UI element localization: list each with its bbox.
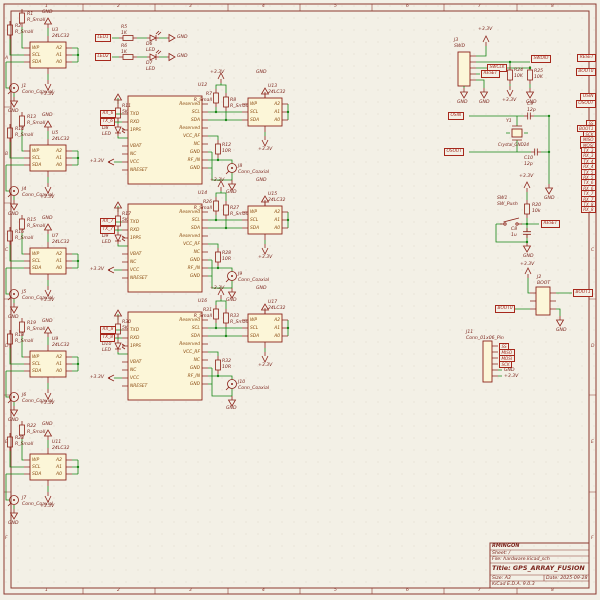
ref-label: R19 R_Small: [27, 321, 45, 333]
titleblock-size: Size: A3: [492, 576, 511, 582]
frame-col: 3: [189, 4, 192, 10]
ref-label: U15 24LC32: [268, 192, 285, 204]
gnd-label: GND: [8, 212, 19, 218]
frame-col: 4: [262, 588, 265, 594]
ref-label: J5 Conn_Coaxial: [22, 290, 53, 302]
power-label: +3.3V: [84, 159, 104, 165]
frame-col: 1: [45, 588, 48, 594]
power-label: +3.3V: [520, 262, 534, 268]
ref-label: R7 R_Small: [182, 92, 212, 104]
net-label[interactable]: SWDIO: [531, 55, 551, 63]
pin-names: Reserved SCL SDA Reserved VCC_RF NC GND …: [158, 101, 200, 173]
gnd-label: GND: [226, 298, 237, 304]
pin-names: A2 A1 A0: [260, 101, 280, 125]
net-label[interactable]: TX_6: [100, 118, 115, 126]
frame-col: 4: [262, 4, 265, 10]
gnd-label: GND: [8, 418, 19, 424]
net-label[interactable]: BOOT1: [573, 289, 593, 297]
titleblock-company: RMINGON: [492, 544, 519, 550]
ref-label: U5 24LC32: [52, 131, 69, 143]
ref-label: Y1: [506, 119, 512, 125]
ref-label: J11 Conn_01x06_Pin: [466, 330, 504, 342]
ref-label: R27 R_Small: [230, 206, 248, 218]
frame-row: F: [591, 536, 594, 542]
titleblock-title: Title: GPS_ARRAY_FUSION: [492, 566, 585, 572]
net-label[interactable]: TX_7: [100, 226, 115, 234]
power-label: +3.3V: [210, 70, 224, 76]
frame-col: 5: [334, 588, 337, 594]
ref-label: R26 R_Small: [182, 200, 212, 212]
frame-row: A: [5, 56, 8, 62]
pin-names: WP SCL SDA: [32, 457, 41, 478]
ref-label: U12: [198, 83, 207, 89]
ref-label: R8 R_Small: [230, 98, 248, 110]
frame-col: 5: [334, 4, 337, 10]
net-label[interactable]: RX_7: [100, 218, 116, 226]
ref-label: D10 LED: [102, 342, 111, 354]
net-label[interactable]: OSOUT: [576, 100, 596, 108]
ref-label: D6 LED: [146, 42, 155, 54]
ref-label: SW1 SW_Push: [497, 196, 518, 208]
gnd-label: GND: [504, 368, 515, 374]
net-label[interactable]: RESET: [481, 70, 500, 78]
gnd-label: GND: [177, 54, 188, 60]
power-label: +3.3V: [210, 286, 224, 292]
ref-label: R24 10K: [514, 68, 523, 80]
frame-col: 2: [117, 4, 120, 10]
ref-label: D7 LED: [146, 61, 155, 73]
ref-label: J10 Conn_Coaxial: [238, 380, 269, 392]
pin-names: WP SCL SDA: [250, 209, 259, 233]
ref-label: C10 12p: [524, 156, 533, 168]
pin-names: WP SCL SDA: [32, 148, 41, 169]
titleblock-tool: KiCad E.D.A. 9.0.3: [492, 582, 535, 588]
pin-names: WP SCL SDA: [32, 251, 41, 272]
gnd-label: GND: [177, 35, 188, 41]
gnd-label: GND: [226, 190, 237, 196]
ref-label: D8 LED: [102, 126, 111, 138]
frame-col: 8: [551, 4, 554, 10]
frame-col: 2: [117, 588, 120, 594]
ref-label: J1 Conn_Coaxial: [22, 84, 53, 96]
power-label: +3.3V: [258, 363, 272, 369]
frame-row: E: [5, 440, 8, 446]
ref-label: R28 10R: [222, 251, 231, 263]
frame-row: B: [5, 152, 8, 158]
ref-label: R2 R_Small: [15, 24, 33, 36]
net-label[interactable]: OSOUT: [444, 148, 464, 156]
power-label: +3.3V: [478, 27, 492, 33]
gnd-label: GND: [8, 109, 19, 115]
ref-label: C8 1u: [511, 227, 517, 239]
pin-names: A2 A1 A0: [44, 354, 62, 375]
pin-names: TXD RXD 1PPS VBAT NC VCC NRESET: [130, 111, 147, 175]
ref-label: J7 Conn_Coaxial: [22, 496, 53, 508]
kicad-schematic-sheet: { "shared": {"gnd": "GND", "v33": "+3.3V…: [0, 0, 600, 600]
ref-label: R20 10k: [532, 203, 541, 215]
power-label: +3.3V: [504, 374, 518, 380]
ref-label: U17 24LC32: [268, 300, 285, 312]
ref-label: J4 Conn_Coaxial: [22, 187, 53, 199]
ref-label: R1 R_Small: [27, 12, 45, 24]
pin-names: A2 A1 A0: [44, 45, 62, 66]
net-label[interactable]: RX_8: [581, 206, 596, 213]
frame-row: F: [5, 536, 8, 542]
power-label: +3.3V: [502, 98, 516, 104]
power-label: +3.3V: [258, 147, 272, 153]
ref-label: R33 R_Small: [230, 314, 248, 326]
ref-label: U16: [198, 299, 207, 305]
net-label[interactable]: RX_6: [100, 110, 116, 118]
ref-label: R25 10K: [534, 69, 543, 81]
ref-label: J3 SWD: [454, 38, 465, 50]
ref-label: C9 12p: [527, 102, 536, 114]
frame-col: 6: [406, 588, 409, 594]
frame-col: 7: [478, 4, 481, 10]
ref-label: U7 24LC32: [52, 234, 69, 246]
frame-row: D: [5, 344, 8, 350]
gnd-label: GND: [8, 315, 19, 321]
pin-names: A2 A1 A0: [260, 317, 280, 341]
pin-names: A2 A1 A0: [44, 251, 62, 272]
ref-label: R12 10R: [222, 143, 231, 155]
ref-label: J9 Conn_Coaxial: [238, 272, 269, 284]
pin-names: WP SCL SDA: [250, 317, 259, 341]
ref-label: R31 R_Small: [182, 308, 212, 320]
net-label[interactable]: RESET: [541, 220, 560, 228]
net-label[interactable]: TX_8: [100, 334, 115, 342]
pin-names: A2 A1 A0: [44, 457, 62, 478]
schematic-canvas[interactable]: [0, 0, 600, 600]
gnd-label: GND: [457, 100, 468, 106]
ref-label: R14 R_Small: [15, 127, 33, 139]
gnd-label: GND: [523, 254, 534, 260]
sheet-frame: [4, 4, 596, 594]
frame-col: 1: [45, 4, 48, 10]
ref-label: R32 10R: [222, 359, 231, 371]
ref-label: J2 BOOT: [537, 275, 550, 287]
ref-label: R6 1K: [121, 44, 127, 56]
net-label[interactable]: OSIN: [448, 112, 464, 120]
pin-names: TXD RXD 1PPS VBAT NC VCC NRESET: [130, 327, 147, 391]
ref-label: U13 24LC32: [268, 84, 285, 96]
power-label: +3.3V: [210, 178, 224, 184]
frame-row: D: [591, 344, 594, 350]
pin-names: WP SCL SDA: [32, 354, 41, 375]
gnd-label: GND: [256, 70, 267, 76]
titleblock-date: Date: 2025-09-28: [546, 576, 588, 582]
titleblock-sheet: Sheet: /: [492, 551, 510, 557]
ref-label: U14: [198, 191, 207, 197]
ref-label: J6 Conn_Coaxial: [22, 393, 53, 405]
pin-names: WP SCL SDA: [32, 45, 41, 66]
net-label[interactable]: BOOT0: [495, 305, 515, 313]
frame-col: 6: [406, 4, 409, 10]
pin-names: Reserved SCL SDA Reserved VCC_RF NC GND …: [158, 209, 200, 281]
ref-label: R5 1K: [121, 25, 127, 37]
ref-label: U3 24LC32: [52, 28, 69, 40]
net-label[interactable]: SCK: [499, 361, 512, 368]
gnd-label: GND: [556, 328, 567, 334]
net-label[interactable]: LED1: [95, 34, 111, 42]
gnd-label: GND: [256, 286, 267, 292]
ref-label: D9 LED: [102, 234, 111, 246]
power-label: +3.3V: [519, 174, 533, 180]
pin-names: A2 A1 A0: [260, 209, 280, 233]
ref-label: J8 Conn_Coaxial: [238, 164, 269, 176]
ref-label: R16 R_Small: [15, 230, 33, 242]
frame-col: 8: [551, 588, 554, 594]
ref-label: R18 R_Small: [15, 333, 33, 345]
reset-button-circuit[interactable]: [496, 182, 539, 252]
net-label[interactable]: BOOT0: [576, 68, 596, 76]
frame-row: E: [591, 440, 594, 446]
gnd-label: GND: [479, 100, 490, 106]
ref-label: U11 24LC32: [52, 440, 69, 452]
pin-names: Reserved SCL SDA Reserved VCC_RF NC GND …: [158, 317, 200, 389]
ref-label: R22 R_Small: [27, 424, 45, 436]
frame-col: 7: [478, 588, 481, 594]
gnd-label: GND: [544, 196, 555, 202]
pin-names: TXD RXD 1PPS VBAT NC VCC NRESET: [130, 219, 147, 283]
pin-names: A2 A1 A0: [44, 148, 62, 169]
gnd-label: GND: [256, 178, 267, 184]
gnd-label: GND: [8, 521, 19, 527]
net-label[interactable]: RESET: [577, 54, 596, 62]
gnd-label: GND: [226, 406, 237, 412]
power-label: +3.3V: [258, 255, 272, 261]
net-label[interactable]: LED2: [95, 53, 111, 61]
ref-label: R23 R_Small: [15, 436, 33, 448]
frame-row: C: [591, 248, 594, 254]
pin-names: WP SCL SDA: [250, 101, 259, 125]
frame-col: 3: [189, 588, 192, 594]
ref-label: R13 R_Small: [27, 115, 45, 127]
value-label: Crystal_GND24: [498, 142, 529, 147]
ref-label: R15 R_Small: [27, 218, 45, 230]
power-label: +3.3V: [84, 375, 104, 381]
ref-label: U9 24LC32: [52, 337, 69, 349]
titleblock-file: File: hardware.kicad_sch: [492, 557, 550, 563]
net-label[interactable]: RX_8: [100, 326, 116, 334]
frame-row: C: [5, 248, 8, 254]
power-label: +3.3V: [84, 267, 104, 273]
